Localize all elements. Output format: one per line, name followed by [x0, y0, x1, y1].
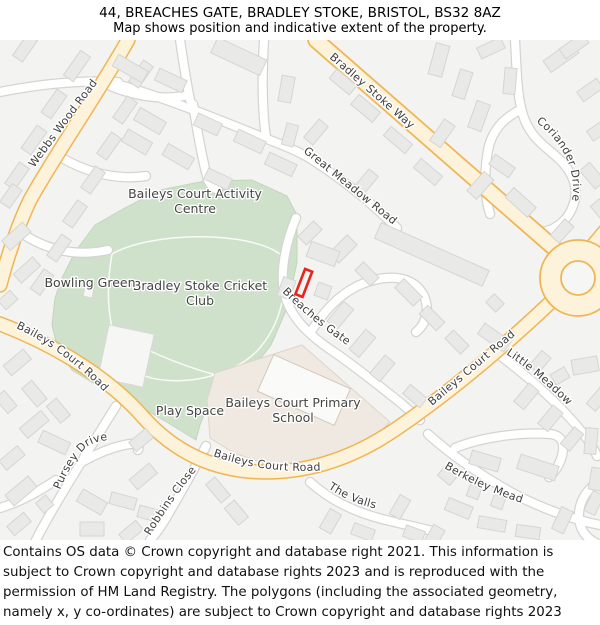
map-header: 44, BREACHES GATE, BRADLEY STOKE, BRISTO…	[0, 0, 600, 40]
page-subtitle: Map shows position and indicative extent…	[0, 21, 600, 37]
property-map-page: 44, BREACHES GATE, BRADLEY STOKE, BRISTO…	[0, 0, 600, 625]
building	[584, 428, 598, 455]
map: Webbs Wood Road Bradley Stoke Way Great …	[0, 40, 600, 540]
label-cricket-club-line1: Bradley Stoke Cricket	[133, 278, 267, 293]
attribution-footer: Contains OS data © Crown copyright and d…	[0, 540, 600, 625]
map-container: Webbs Wood Road Bradley Stoke Way Great …	[0, 40, 600, 540]
roundabout-island	[561, 261, 595, 295]
label-activity-centre-line2: Centre	[174, 201, 216, 216]
building	[80, 522, 104, 536]
label-school-line2: School	[272, 410, 314, 425]
label-activity-centre-line1: Baileys Court Activity	[128, 186, 262, 201]
label-school-line1: Baileys Court Primary	[225, 395, 361, 410]
label-bowling-green: Bowling Green	[44, 275, 135, 290]
page-title: 44, BREACHES GATE, BRADLEY STOKE, BRISTO…	[0, 0, 600, 21]
label-cricket-club-line2: Club	[186, 293, 214, 308]
label-play-space: Play Space	[156, 403, 224, 418]
building	[503, 68, 517, 95]
